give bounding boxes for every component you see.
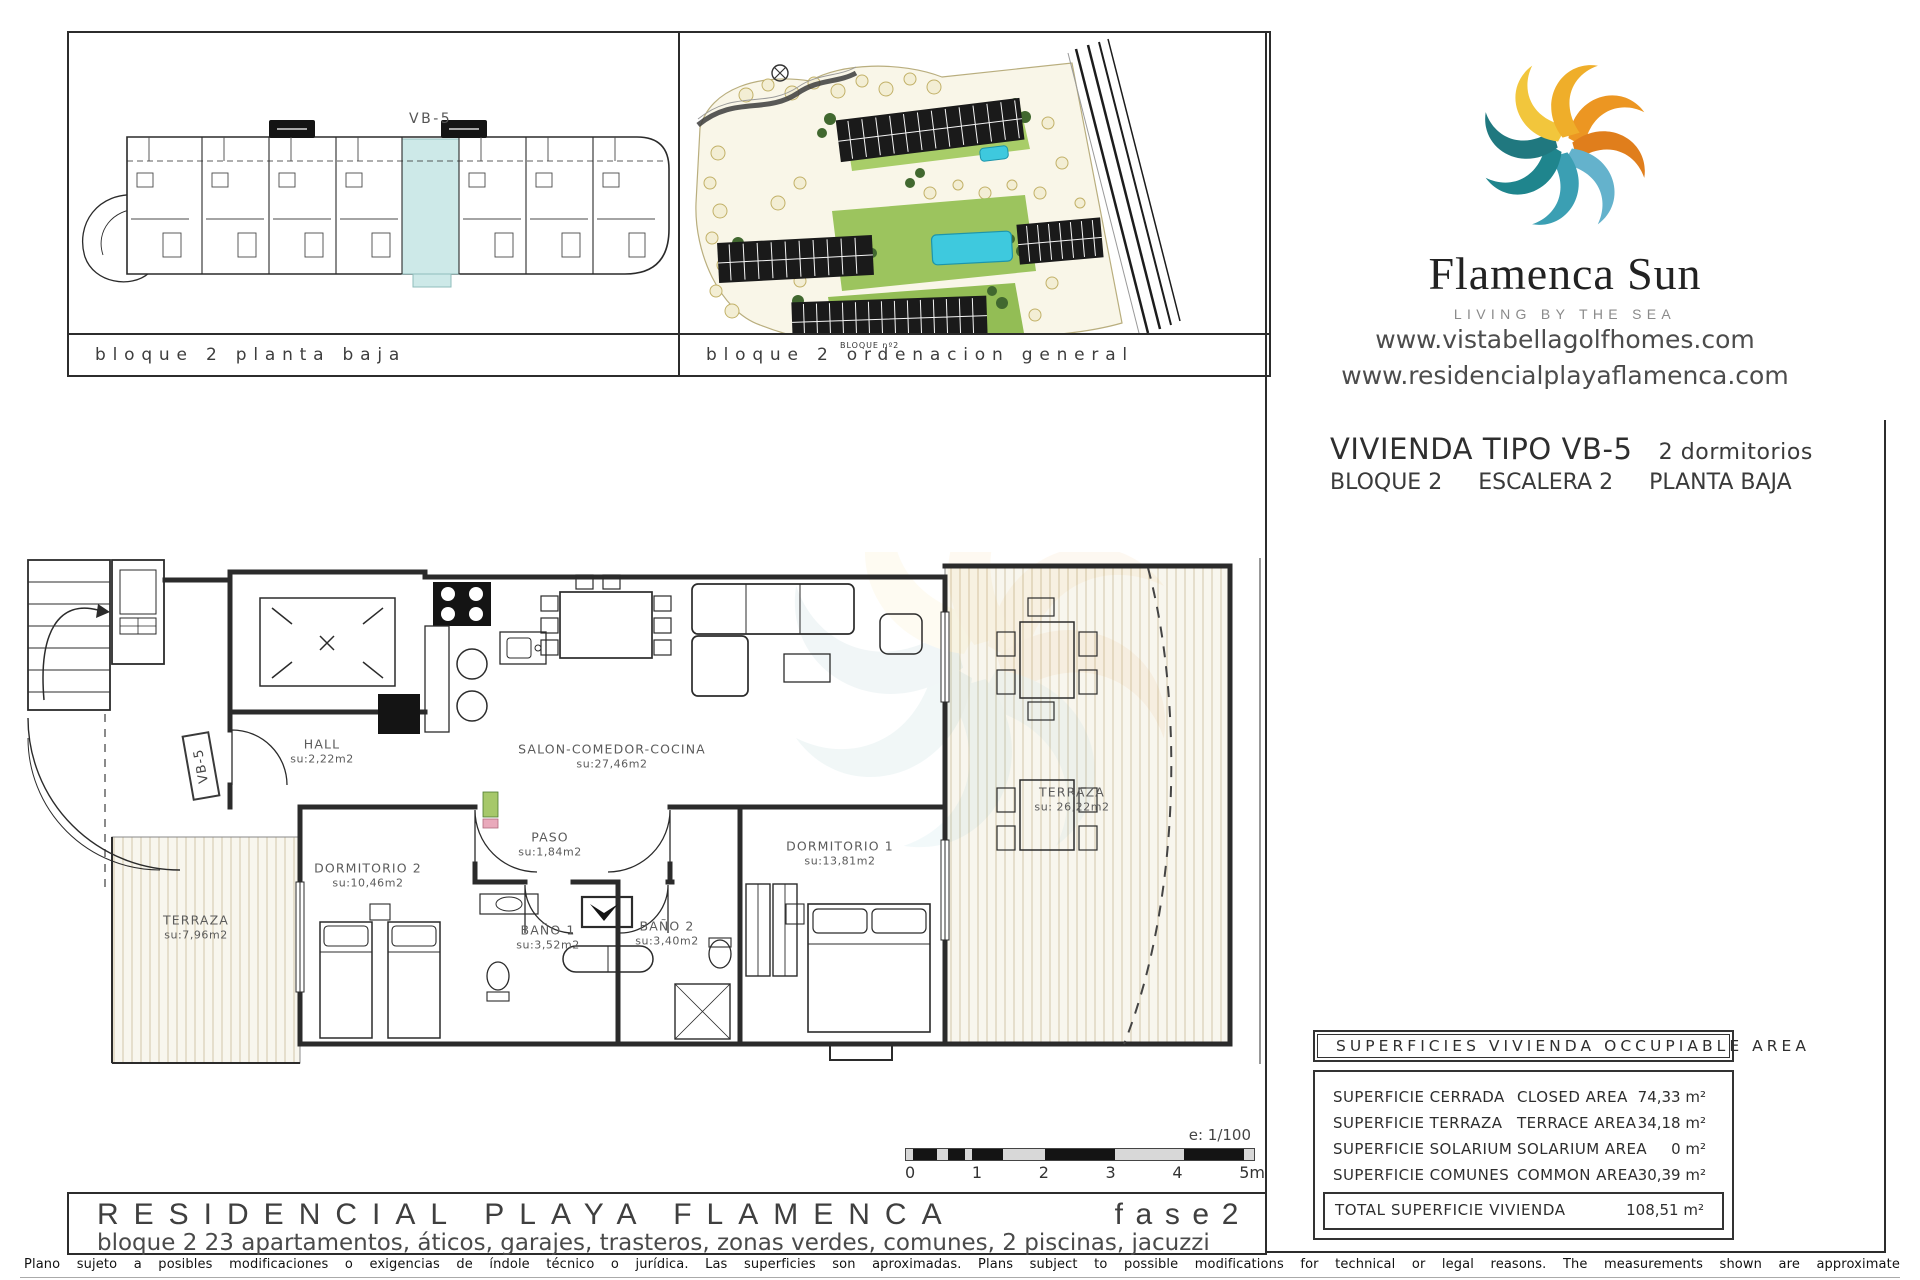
room-area: su:27,46m2	[518, 758, 706, 772]
row-label-en: COMMON AREA	[1517, 1166, 1638, 1184]
room-name: DORMITORIO 1	[786, 839, 894, 854]
panel-planta-baja: VB-5 bloque 2 planta baja	[67, 31, 684, 377]
unit-bedrooms: 2 dormitorios	[1659, 440, 1813, 465]
room-label-bano2: BAÑO 2 su:3,40m2	[635, 919, 699, 950]
right-border-line	[1884, 420, 1886, 1253]
table-row: SUPERFICIE COMUNES COMMON AREA 30,39 m²	[1315, 1166, 1732, 1186]
panel-ordenacion-general: BLOQUE nº2 bloque 2 ordenacion general	[678, 31, 1271, 377]
project-title: RESIDENCIAL PLAYA FLAMENCA	[97, 1198, 957, 1232]
highlight-unit-label: VB-5	[409, 111, 452, 127]
unit-block: BLOQUE 2	[1330, 470, 1442, 495]
row-value: 30,39 m²	[1638, 1166, 1706, 1184]
website-1: www.vistabellagolfhomes.com	[1280, 322, 1850, 358]
row-label-en: CLOSED AREA	[1517, 1088, 1628, 1106]
room-label-dormitorio1: DORMITORIO 1 su:13,81m2	[786, 839, 894, 870]
room-label-dormitorio2: DORMITORIO 2 su:10,46m2	[314, 861, 422, 892]
bottom-border-line	[1265, 1251, 1886, 1253]
room-area: su:2,22m2	[290, 753, 354, 767]
room-name: TERRAZA	[163, 913, 229, 928]
brand-name: Flamenca Sun	[1330, 247, 1800, 300]
table-row: SUPERFICIE SOLARIUM SOLARIUM AREA 0 m²	[1315, 1140, 1732, 1160]
panel-planta-caption: bloque 2 planta baja	[69, 333, 682, 375]
scale-ticks: 0 1 2 3 4 5m	[905, 1163, 1265, 1182]
row-label-es: SUPERFICIE COMUNES	[1333, 1166, 1509, 1184]
row-label-es: SUPERFICIE CERRADA	[1333, 1088, 1505, 1106]
table-row: SUPERFICIE TERRAZA TERRACE AREA 34,18 m²	[1315, 1114, 1732, 1134]
plan-sheet: VB-5 bloque 2 planta baja	[0, 0, 1920, 1280]
row-label-en: SOLARIUM AREA	[1517, 1140, 1647, 1158]
row-value: 34,18 m²	[1638, 1114, 1706, 1132]
areas-table-header-text: SUPERFICIES VIVIENDA OCCUPIABLE AREA	[1317, 1034, 1730, 1058]
scale-tick: 1	[972, 1163, 982, 1182]
room-label-bano1: BAÑO 1 su:3,52m2	[516, 923, 580, 954]
areas-table: SUPERFICIE CERRADA CLOSED AREA 74,33 m² …	[1313, 1070, 1734, 1240]
scale-note: e: 1/100	[905, 1126, 1255, 1144]
scale-tick: 2	[1039, 1163, 1049, 1182]
total-label: TOTAL SUPERFICIE VIVIENDA	[1335, 1201, 1566, 1219]
scale-tick: 4	[1172, 1163, 1182, 1182]
room-name: SALON-COMEDOR-COCINA	[518, 742, 706, 757]
unit-title: VIVIENDA TIPO VB-5	[1330, 432, 1633, 466]
row-value: 74,33 m²	[1638, 1088, 1706, 1106]
room-area: su: 26,22m2	[1034, 801, 1109, 815]
website-2: www.residencialplayaflamenca.com	[1280, 358, 1850, 394]
project-phase: fase2	[1115, 1198, 1251, 1232]
column-divider-line	[1265, 31, 1267, 1253]
panel-ordenacion-caption: bloque 2 ordenacion general	[680, 333, 1269, 375]
row-value: 0 m²	[1671, 1140, 1706, 1158]
brand-block: Flamenca Sun LIVING BY THE SEA	[1330, 52, 1800, 322]
unit-floor: PLANTA BAJA	[1649, 470, 1792, 495]
unit-info: VIVIENDA TIPO VB-52 dormitorios BLOQUE 2…	[1330, 432, 1890, 495]
table-total-row: TOTAL SUPERFICIE VIVIENDA 108,51 m²	[1323, 1192, 1724, 1230]
room-name: TERRAZA	[1039, 785, 1105, 800]
room-label-salon: SALON-COMEDOR-COCINA su:27,46m2	[518, 742, 706, 773]
row-label-es: SUPERFICIE TERRAZA	[1333, 1114, 1502, 1132]
project-subtitle: bloque 2 23 apartamentos, áticos, garaje…	[69, 1230, 1265, 1256]
areas-table-header: SUPERFICIES VIVIENDA OCCUPIABLE AREA	[1313, 1030, 1734, 1062]
brand-tagline: LIVING BY THE SEA	[1330, 306, 1800, 322]
room-name: DORMITORIO 2	[314, 861, 422, 876]
row-label-es: SUPERFICIE SOLARIUM	[1333, 1140, 1512, 1158]
room-name: BAÑO 1	[520, 923, 575, 938]
room-label-terraza-left: TERRAZA su:7,96m2	[163, 913, 229, 944]
room-area: su:10,46m2	[314, 877, 422, 891]
room-area: su:3,52m2	[516, 939, 580, 953]
scale-tick: 5m	[1239, 1163, 1265, 1182]
room-label-terraza-right: TERRAZA su: 26,22m2	[1034, 785, 1109, 816]
room-area: su:13,81m2	[786, 855, 894, 869]
row-label-en: TERRACE AREA	[1517, 1114, 1636, 1132]
building-strip-drawing	[69, 33, 682, 333]
total-value: 108,51 m²	[1626, 1201, 1704, 1219]
scale-tick: 0	[905, 1163, 915, 1182]
room-name: PASO	[531, 830, 569, 845]
scale-bar-graphic	[905, 1148, 1255, 1161]
room-name: BAÑO 2	[639, 919, 694, 934]
table-row: SUPERFICIE CERRADA CLOSED AREA 74,33 m²	[1315, 1088, 1732, 1108]
floorplan-drawing	[20, 552, 1270, 1080]
room-label-paso: PASO su:1,84m2	[518, 830, 582, 861]
scale-bar: e: 1/100 0 1 2 3 4 5m	[905, 1126, 1255, 1182]
room-label-hall: HALL su:2,22m2	[290, 737, 354, 768]
siteplan-drawing	[680, 33, 1265, 333]
website-links: www.vistabellagolfhomes.com www.residenc…	[1280, 322, 1850, 395]
unit-stair: ESCALERA 2	[1478, 470, 1613, 495]
sun-logo-icon	[1472, 52, 1658, 238]
title-block: RESIDENCIAL PLAYA FLAMENCA fase2 bloque …	[67, 1192, 1267, 1255]
room-area: su:1,84m2	[518, 846, 582, 860]
room-area: su:3,40m2	[635, 935, 699, 949]
disclaimer-text: Plano sujeto a posibles modificaciones o…	[24, 1257, 1900, 1272]
room-name: HALL	[304, 737, 340, 752]
page-edge-line	[20, 1277, 1900, 1278]
scale-tick: 3	[1106, 1163, 1116, 1182]
room-area: su:7,96m2	[163, 929, 229, 943]
